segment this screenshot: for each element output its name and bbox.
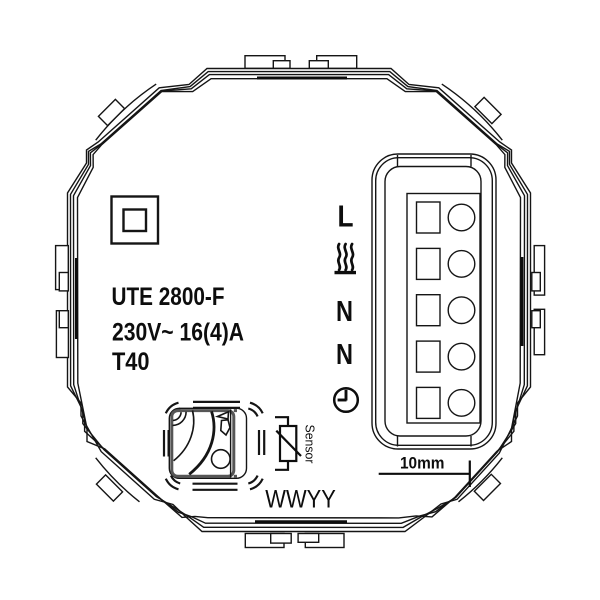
svg-text:WWYY: WWYY (265, 487, 336, 514)
svg-text:T40: T40 (112, 348, 150, 376)
svg-text:UTE 2800-F: UTE 2800-F (112, 283, 225, 311)
svg-text:Sensor: Sensor (303, 425, 318, 465)
svg-text:230V~ 16(4)A: 230V~ 16(4)A (112, 318, 244, 346)
svg-text:L: L (338, 200, 354, 234)
svg-text:N: N (336, 296, 353, 328)
svg-text:N: N (336, 339, 353, 371)
svg-text:10mm: 10mm (400, 454, 445, 472)
